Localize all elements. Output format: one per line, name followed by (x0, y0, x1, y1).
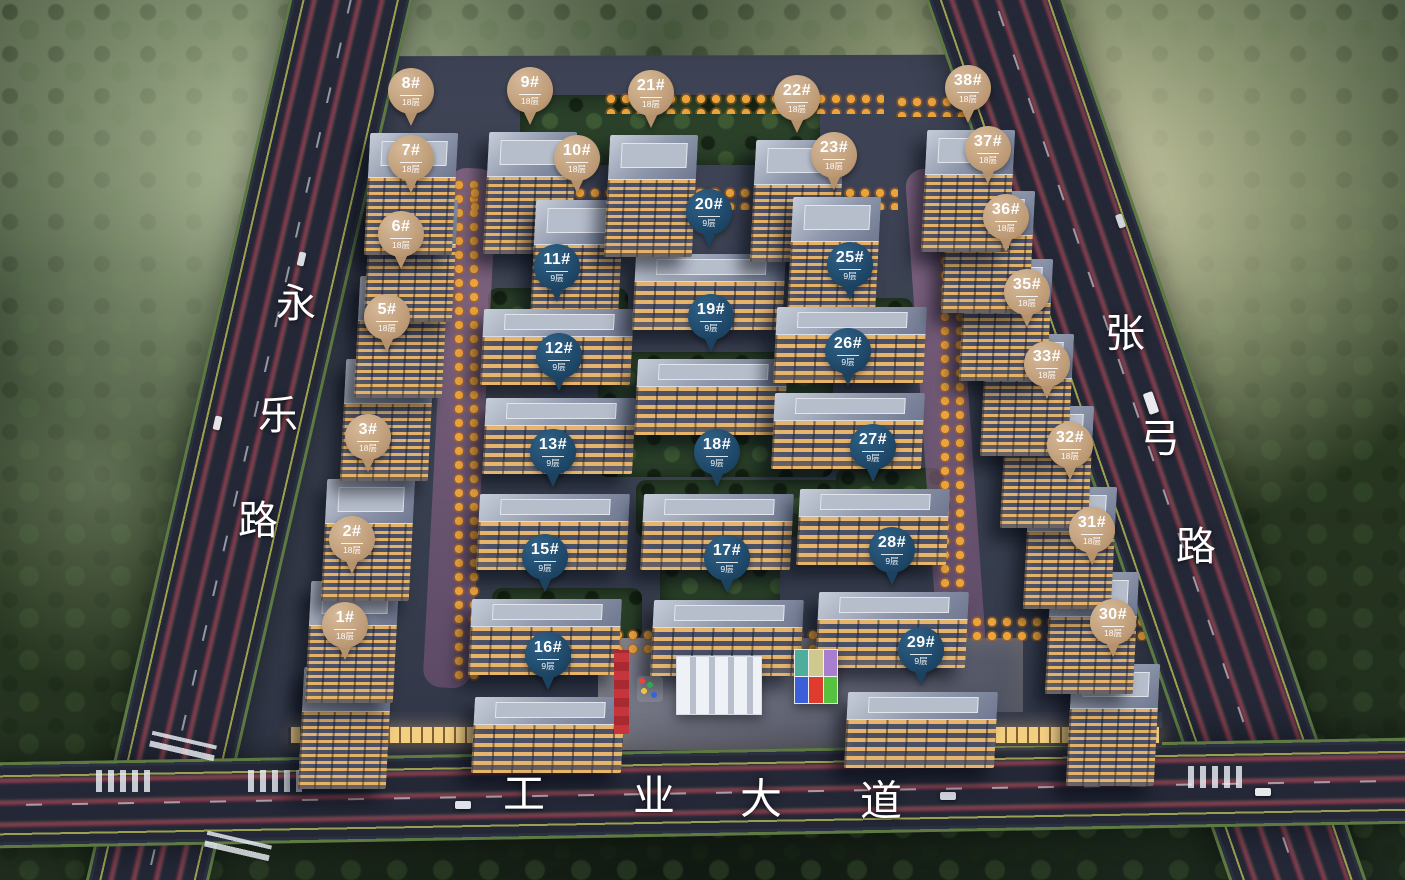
building-facade (1066, 709, 1158, 786)
road-name-char: 乐 (258, 383, 298, 441)
marker-number: 28# (878, 535, 906, 551)
marker-number: 7# (402, 143, 421, 159)
building-marker-26[interactable]: 26#9层 (825, 328, 871, 386)
building-marker-23[interactable]: 23#18层 (811, 132, 857, 190)
masterplan-rendering: 永乐路 张弓路 工业大道 1#18层2#18层3#18层5#18层6#18层7#… (0, 0, 1405, 880)
marker-number: 16# (534, 640, 562, 656)
building-marker-2[interactable]: 2#18层 (329, 516, 375, 574)
building-marker-28[interactable]: 28#9层 (869, 527, 915, 585)
marker-number: 33# (1033, 349, 1061, 365)
marker-number: 32# (1056, 430, 1084, 446)
building-roof (479, 494, 630, 522)
building-facade (604, 180, 696, 257)
marker-floors: 9层 (704, 324, 717, 333)
road-name-char: 张 (1105, 301, 1145, 359)
marker-floors: 18层 (359, 444, 377, 453)
building-roof (653, 600, 804, 628)
building-roof (774, 393, 925, 421)
building-marker-16[interactable]: 16#9层 (525, 632, 571, 690)
building-marker-9[interactable]: 9#18层 (507, 67, 553, 125)
building-roof (791, 197, 881, 242)
building-29 (844, 692, 998, 768)
marker-head: 27#9层 (850, 424, 896, 470)
marker-number: 31# (1078, 515, 1106, 531)
crosswalk (96, 770, 154, 792)
marker-floors: 9层 (550, 274, 563, 283)
marker-divider (534, 561, 556, 562)
marker-number: 21# (637, 78, 665, 94)
building-marker-30[interactable]: 30#18层 (1090, 599, 1136, 657)
building-marker-31[interactable]: 31#18层 (1069, 507, 1115, 565)
marker-head: 28#9层 (869, 527, 915, 573)
building-roof (485, 398, 636, 426)
crosswalk (1188, 766, 1246, 788)
building-marker-11[interactable]: 11#9层 (534, 244, 580, 302)
marker-number: 5# (378, 302, 397, 318)
vehicle (940, 792, 956, 800)
marker-number: 29# (907, 635, 935, 651)
building-marker-27[interactable]: 27#9层 (850, 424, 896, 482)
marker-head: 37#18层 (965, 126, 1011, 172)
building-marker-22[interactable]: 22#18层 (774, 75, 820, 133)
marker-head: 26#9层 (825, 328, 871, 374)
marker-head: 20#9层 (686, 189, 732, 235)
playground (637, 676, 663, 702)
marker-floors: 18层 (1018, 299, 1036, 308)
building-marker-1[interactable]: 1#18层 (322, 602, 368, 660)
marker-floors: 9层 (843, 272, 856, 281)
road-name-char: 业 (633, 763, 675, 824)
building-19 (634, 359, 788, 435)
marker-head: 1#18层 (322, 602, 368, 648)
marker-head: 2#18层 (329, 516, 375, 562)
marker-divider (566, 162, 588, 163)
marker-head: 11#9层 (534, 244, 580, 290)
marker-number: 12# (545, 341, 573, 357)
building-26 (771, 393, 925, 469)
marker-floors: 18层 (402, 98, 420, 107)
marker-floors: 9层 (914, 657, 927, 666)
marker-floors: 9层 (702, 219, 715, 228)
marker-number: 11# (543, 252, 570, 268)
building-marker-38[interactable]: 38#18层 (945, 65, 991, 123)
road-name-char: 弓 (1140, 406, 1180, 464)
marker-divider (700, 321, 722, 322)
marker-divider (390, 238, 412, 239)
marker-number: 6# (392, 219, 411, 235)
marker-floors: 18层 (1038, 371, 1056, 380)
marker-floors: 18层 (1061, 452, 1079, 461)
marker-divider (995, 221, 1017, 222)
marker-divider (640, 97, 662, 98)
marker-number: 13# (539, 437, 567, 453)
marker-floors: 9层 (866, 454, 879, 463)
marker-number: 30# (1099, 607, 1127, 623)
marker-floors: 9层 (720, 565, 733, 574)
marker-number: 23# (820, 140, 848, 156)
building-marker-33[interactable]: 33#18层 (1024, 341, 1070, 399)
marker-head: 12#9层 (536, 333, 582, 379)
marker-number: 38# (954, 73, 982, 89)
marker-divider (786, 102, 808, 103)
marker-head: 6#18层 (378, 211, 424, 257)
marker-number: 3# (359, 422, 378, 438)
marker-divider (977, 153, 999, 154)
building-marker-13[interactable]: 13#9层 (530, 429, 576, 487)
marker-head: 7#18层 (388, 135, 434, 181)
marker-divider (910, 654, 932, 655)
building-roof (799, 489, 950, 517)
marker-number: 20# (695, 197, 723, 213)
marker-number: 17# (713, 543, 741, 559)
building-roof (818, 592, 969, 620)
marker-divider (1059, 449, 1081, 450)
roof-panel (795, 677, 808, 703)
building-marker-37[interactable]: 37#18层 (965, 126, 1011, 184)
marker-head: 31#18层 (1069, 507, 1115, 553)
marker-divider (537, 659, 559, 660)
building-facade (844, 720, 996, 768)
marker-floors: 9层 (541, 662, 554, 671)
marker-floors: 18层 (336, 632, 354, 641)
marker-head: 25#9层 (827, 242, 873, 288)
marker-divider (716, 562, 738, 563)
building-21 (604, 135, 698, 257)
marker-head: 22#18层 (774, 75, 820, 121)
marker-floors: 9层 (841, 358, 854, 367)
marker-number: 27# (859, 432, 887, 448)
marker-head: 10#18层 (554, 135, 600, 181)
roof-panel (809, 650, 822, 676)
building-marker-19[interactable]: 19#9层 (688, 294, 734, 352)
building-marker-15[interactable]: 15#9层 (522, 534, 568, 592)
white-canopy-building (676, 656, 762, 715)
building-marker-5[interactable]: 5#18层 (364, 294, 410, 352)
marker-head: 5#18层 (364, 294, 410, 340)
marker-head: 18#9层 (694, 429, 740, 475)
marker-divider (957, 92, 979, 93)
marker-divider (706, 456, 728, 457)
marker-divider (334, 629, 356, 630)
marker-head: 17#9层 (704, 535, 750, 581)
marker-floors: 9层 (710, 459, 723, 468)
building-roof (637, 359, 788, 387)
marker-floors: 18层 (521, 97, 539, 106)
marker-divider (862, 451, 884, 452)
building-roof (643, 494, 794, 522)
marker-floors: 18层 (343, 546, 361, 555)
building-marker-29[interactable]: 29#9层 (898, 627, 944, 685)
marker-head: 33#18层 (1024, 341, 1070, 387)
marker-number: 25# (836, 250, 864, 266)
kindergarten-colorful-roof (794, 649, 838, 704)
marker-number: 18# (703, 437, 731, 453)
building-roof (847, 692, 998, 720)
marker-head: 9#18层 (507, 67, 553, 113)
marker-head: 32#18层 (1047, 422, 1093, 468)
marker-divider (542, 456, 564, 457)
building-facade (298, 712, 390, 789)
marker-floors: 18层 (959, 95, 977, 104)
building-marker-8[interactable]: 8#18层 (388, 68, 434, 126)
marker-head: 21#18层 (628, 70, 674, 116)
roof-panel (809, 677, 822, 703)
vehicle (1255, 788, 1271, 796)
marker-number: 36# (992, 202, 1020, 218)
marker-number: 9# (521, 75, 540, 91)
marker-floors: 9层 (546, 459, 559, 468)
building-roof (471, 599, 622, 627)
marker-floors: 18层 (1083, 537, 1101, 546)
marker-head: 35#18层 (1004, 269, 1050, 315)
building-marker-36[interactable]: 36#18层 (983, 194, 1029, 252)
road-name-char: 工 (503, 761, 545, 822)
marker-divider (519, 94, 541, 95)
marker-head: 23#18层 (811, 132, 857, 178)
building-marker-10[interactable]: 10#18层 (554, 135, 600, 193)
marker-floors: 18层 (568, 165, 586, 174)
marker-head: 13#9层 (530, 429, 576, 475)
building-marker-25[interactable]: 25#9层 (827, 242, 873, 300)
marker-floors: 18层 (402, 165, 420, 174)
roof-panel (795, 650, 808, 676)
marker-floors: 18层 (1104, 629, 1122, 638)
building-marker-18[interactable]: 18#9层 (694, 429, 740, 487)
road-name-char: 永 (276, 271, 316, 329)
marker-divider (837, 355, 859, 356)
marker-number: 1# (336, 610, 355, 626)
building-28 (815, 592, 969, 668)
marker-floors: 9层 (552, 363, 565, 372)
marker-head: 15#9层 (522, 534, 568, 580)
road-name-char: 路 (1176, 514, 1216, 572)
marker-floors: 18层 (392, 241, 410, 250)
building-roof (608, 135, 698, 180)
marker-divider (1102, 626, 1124, 627)
building-facade (471, 725, 623, 773)
building-facade (771, 421, 923, 469)
marker-head: 3#18层 (345, 414, 391, 460)
marker-number: 8# (402, 76, 421, 92)
marker-divider (698, 216, 720, 217)
marker-number: 10# (563, 143, 591, 159)
marker-head: 29#9层 (898, 627, 944, 673)
roof-panel (824, 677, 837, 703)
building-marker-32[interactable]: 32#18层 (1047, 422, 1093, 480)
marker-divider (376, 321, 398, 322)
marker-divider (881, 554, 903, 555)
marker-divider (357, 441, 379, 442)
building-marker-12[interactable]: 12#9层 (536, 333, 582, 391)
marker-divider (823, 159, 845, 160)
marker-head: 8#18层 (388, 68, 434, 114)
marker-floors: 18层 (997, 224, 1015, 233)
marker-floors: 18层 (642, 100, 660, 109)
marker-floors: 9层 (885, 557, 898, 566)
building-marker-20[interactable]: 20#9层 (686, 189, 732, 247)
building-marker-6[interactable]: 6#18层 (378, 211, 424, 269)
marker-head: 16#9层 (525, 632, 571, 678)
vehicle (455, 801, 471, 809)
building-facade (634, 387, 786, 435)
marker-head: 30#18层 (1090, 599, 1136, 645)
marker-number: 22# (783, 83, 811, 99)
marker-divider (548, 360, 570, 361)
marker-divider (1036, 368, 1058, 369)
marker-divider (400, 162, 422, 163)
building-roof (474, 697, 625, 725)
roof-panel (824, 650, 837, 676)
marker-head: 19#9层 (688, 294, 734, 340)
marker-divider (839, 269, 861, 270)
building-marker-7[interactable]: 7#18层 (388, 135, 434, 193)
marker-head: 36#18层 (983, 194, 1029, 240)
building-marker-17[interactable]: 17#9层 (704, 535, 750, 593)
road-name-char: 大 (740, 766, 782, 827)
marker-divider (400, 95, 422, 96)
marker-divider (1081, 534, 1103, 535)
marker-number: 19# (697, 302, 725, 318)
building-16 (471, 697, 625, 773)
marker-floors: 18层 (788, 105, 806, 114)
marker-head: 38#18层 (945, 65, 991, 111)
marker-floors: 9层 (538, 564, 551, 573)
road-name-char: 路 (238, 488, 278, 546)
marker-number: 2# (343, 524, 362, 540)
marker-number: 15# (531, 542, 559, 558)
building-marker-3[interactable]: 3#18层 (345, 414, 391, 472)
marker-number: 37# (974, 134, 1002, 150)
marker-number: 26# (834, 336, 862, 352)
marker-floors: 18层 (825, 162, 843, 171)
marker-floors: 18层 (979, 156, 997, 165)
red-walkway (614, 650, 629, 734)
building-marker-21[interactable]: 21#18层 (628, 70, 674, 128)
road-name-char: 道 (860, 768, 902, 829)
marker-floors: 18层 (378, 324, 396, 333)
marker-number: 35# (1013, 277, 1041, 293)
marker-divider (341, 543, 363, 544)
building-marker-35[interactable]: 35#18层 (1004, 269, 1050, 327)
marker-divider (546, 271, 568, 272)
marker-divider (1016, 296, 1038, 297)
